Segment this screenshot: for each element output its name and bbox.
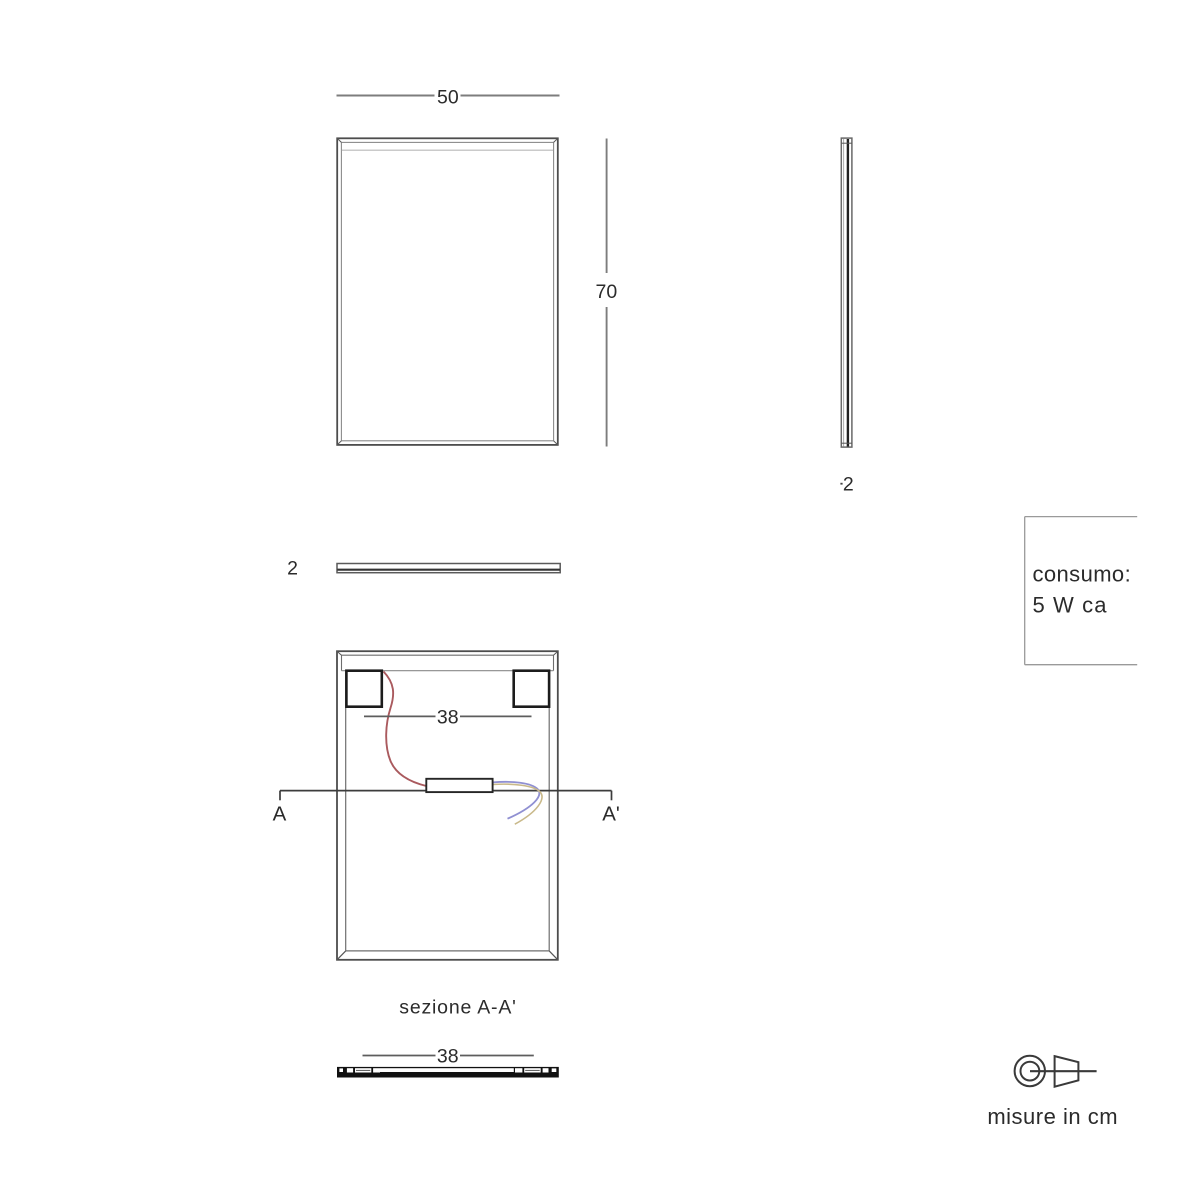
svg-text:38: 38 (437, 706, 459, 728)
svg-text:A: A (273, 803, 287, 826)
svg-text:A': A' (602, 803, 620, 826)
svg-text:misure in cm: misure in cm (987, 1104, 1118, 1129)
svg-text:2: 2 (843, 473, 854, 495)
svg-text:38: 38 (437, 1046, 459, 1068)
svg-text:70: 70 (596, 281, 618, 303)
svg-text:sezione A-A': sezione A-A' (399, 997, 516, 1019)
svg-text:2: 2 (287, 558, 298, 580)
svg-text:50: 50 (437, 87, 459, 109)
svg-text:5 W ca: 5 W ca (1033, 592, 1108, 617)
svg-text:consumo:: consumo: (1033, 562, 1132, 587)
